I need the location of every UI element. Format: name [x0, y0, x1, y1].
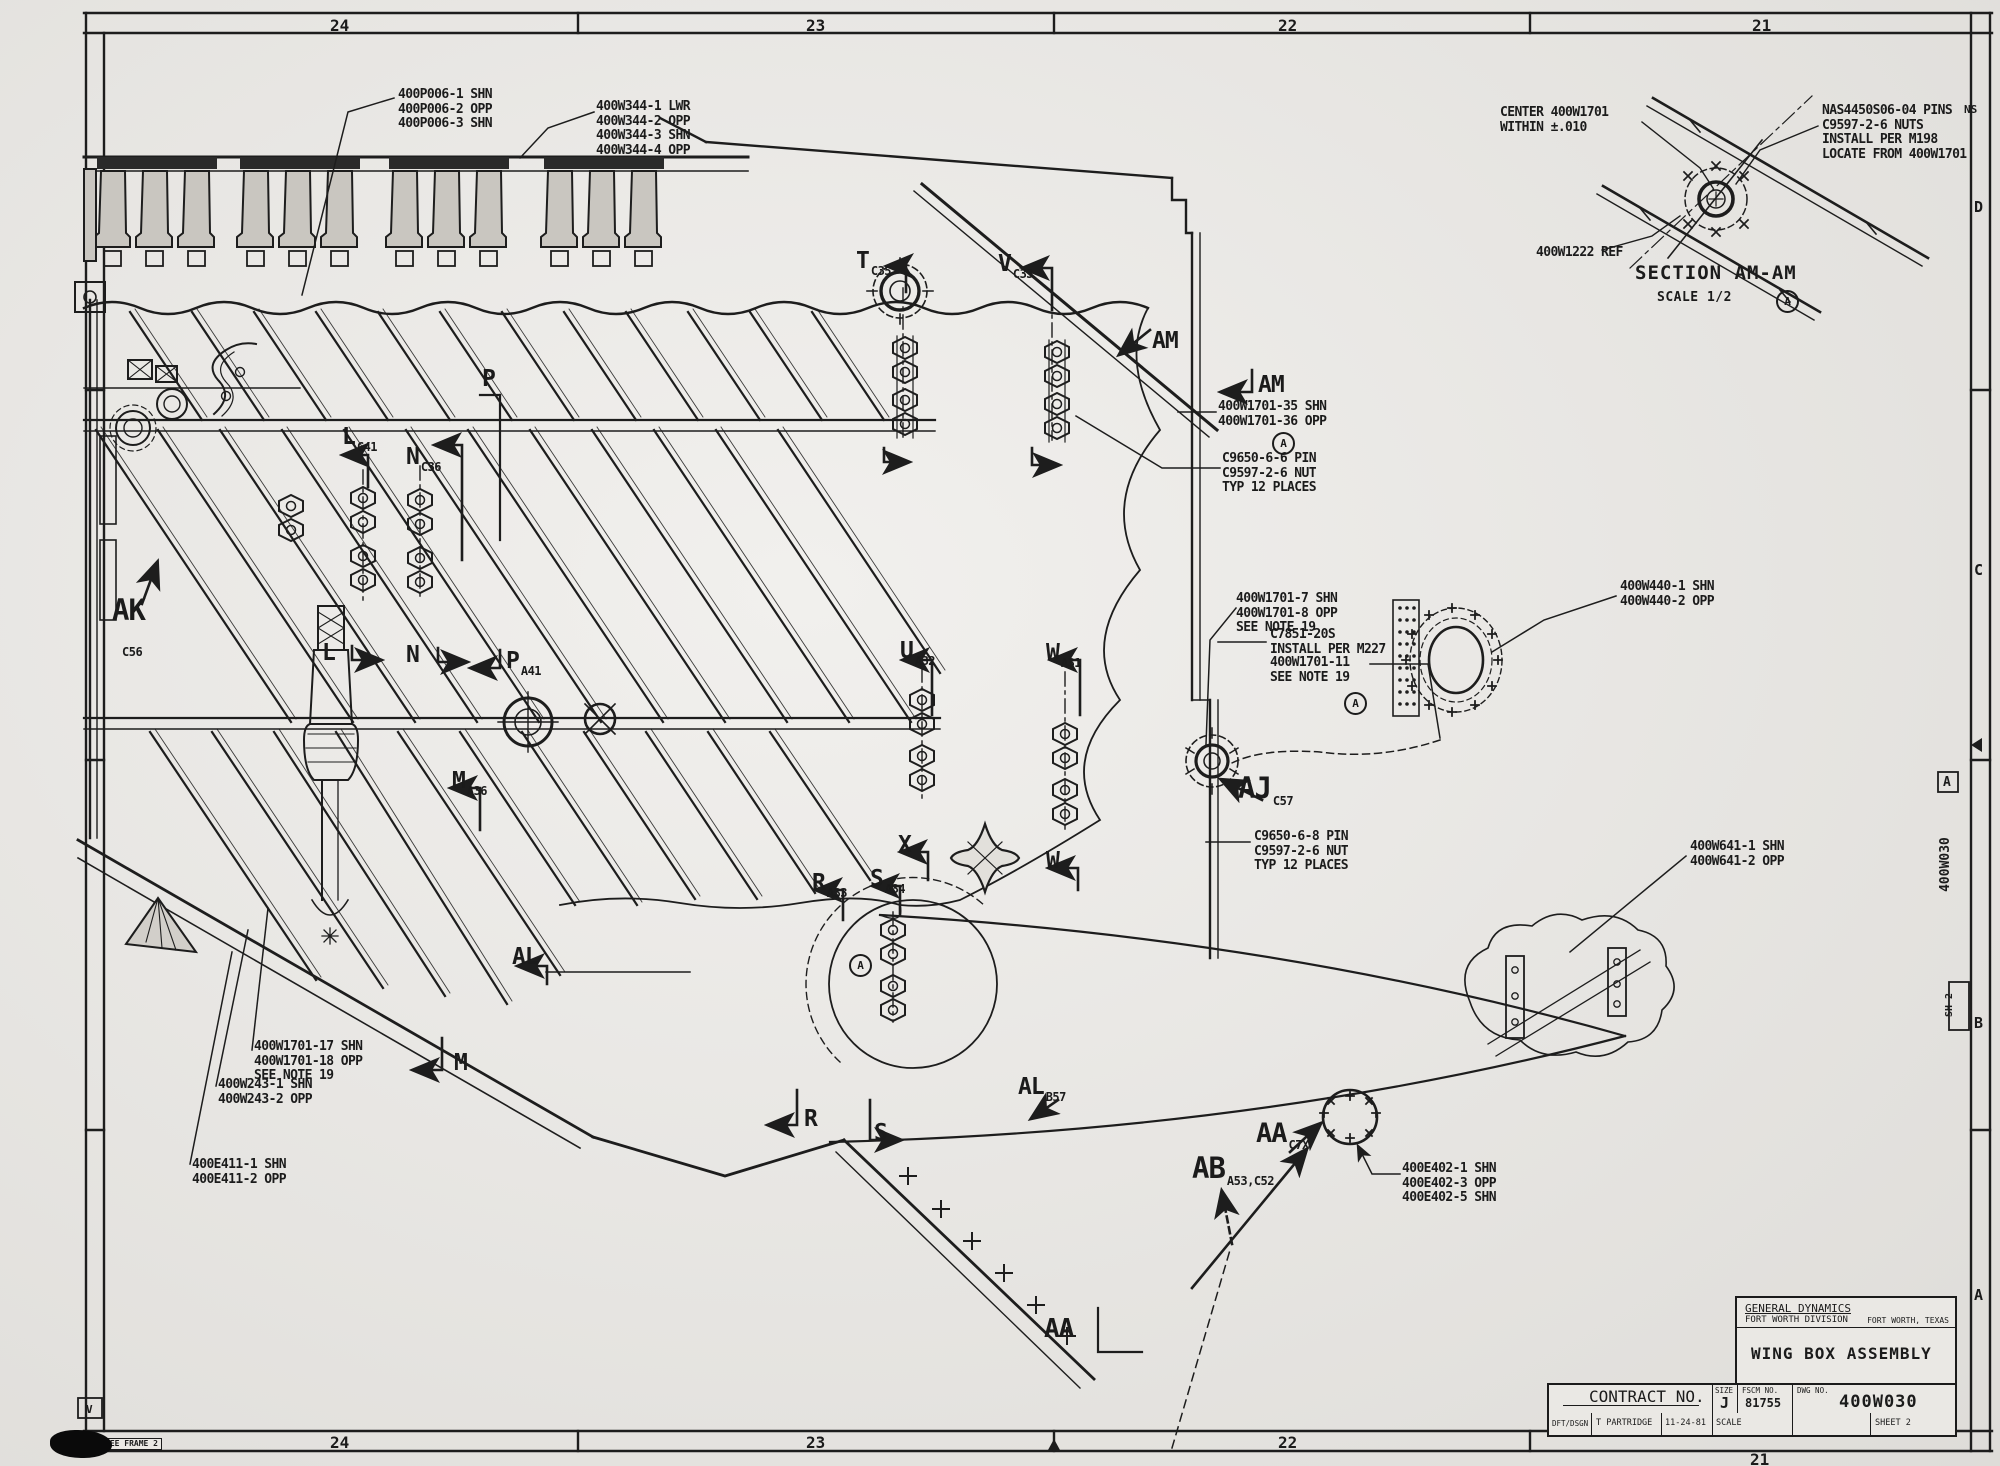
section-label-aa-c7x: AAC7X — [1256, 1120, 1309, 1151]
aa-ring-fitting — [1320, 1090, 1380, 1144]
section-label-aa-bottom: AA — [1044, 1316, 1073, 1342]
mid-spar-member — [84, 388, 940, 729]
section-label-s-bottom: S — [874, 1122, 887, 1145]
callout-400w440: 400W440-1 SHN400W440-2 OPP — [1620, 580, 1714, 609]
label-arrows — [142, 266, 1320, 1352]
leader-lines — [190, 98, 1686, 1448]
callout-nas-pins: NAS4450S06-04 PINSC9597-2-6 NUTSINSTALL … — [1822, 104, 1967, 162]
section-scale-flag: A — [1776, 290, 1799, 313]
draftsman-name: T PARTRIDGE — [1596, 1418, 1652, 1428]
dft-dsgn-label: DFT/DSGN — [1552, 1419, 1588, 1428]
callout-400p006: 400P006-1 SHN400P006-2 OPP400P006-3 SHN — [398, 88, 492, 132]
callout-400w344: 400W344-1 LWR400W344-2 OPP400W344-3 SHN4… — [596, 100, 690, 158]
dwg-no-value: 400W030 — [1839, 1392, 1918, 1412]
wing-skin-outline — [78, 118, 1218, 1388]
callout-400w1222: 400W1222 REF — [1536, 246, 1623, 261]
callout-400e402: 400E402-1 SHN400E402-3 OPP400E402-5 SHN — [1402, 1162, 1496, 1206]
section-label-al-b57: ALB57 — [1018, 1076, 1066, 1103]
division: FORT WORTH DIVISION — [1745, 1315, 1848, 1325]
zone-bottom-24: 24 — [330, 1435, 349, 1451]
zone-top-22: 22 — [1278, 18, 1297, 34]
drawing-date: 11-24-81 — [1665, 1418, 1706, 1428]
section-label-l-top: LC41 — [342, 426, 377, 453]
section-label-m-top: MA36 — [452, 770, 487, 797]
upper-rib-fittings — [75, 157, 748, 312]
engineering-drawing-sheet: 24 23 22 21 24 23 22 21 D C B A A NS 400… — [0, 0, 2000, 1466]
zone-bottom-23: 23 — [806, 1435, 825, 1451]
section-label-r-top: RA33 — [812, 872, 847, 899]
torn-patch-with-straps — [1465, 914, 1674, 1056]
lower-spar-fittings — [498, 692, 615, 752]
section-label-v-top: VC33 — [998, 253, 1033, 280]
gusset-fitting — [126, 898, 196, 952]
fscm-value: 81755 — [1745, 1396, 1781, 1410]
section-label-n-top: NC36 — [406, 446, 441, 473]
zone-letter-a: A — [1974, 1288, 1983, 1303]
racetrack-fastener-ring — [1393, 600, 1502, 716]
section-label-m-bottom: M — [454, 1052, 467, 1075]
rev-flag: V — [86, 1404, 93, 1415]
dwg-no-label: DWG NO. — [1797, 1386, 1829, 1395]
size-value: J — [1720, 1394, 1729, 1412]
section-label-al-top: AL — [512, 946, 538, 969]
drawing-linework — [0, 0, 2000, 1466]
section-label-ab: ABA53,C52 — [1192, 1154, 1274, 1187]
section-label-n-bottom: N — [406, 644, 419, 667]
scale-label: SCALE — [1716, 1418, 1742, 1428]
zone-top-23: 23 — [806, 18, 825, 34]
section-label-r-bottom: R — [804, 1108, 817, 1131]
callout-400w641: 400W641-1 SHN400W641-2 OPP — [1690, 840, 1784, 869]
drawing-title: WING BOX ASSEMBLY — [1751, 1344, 1932, 1363]
flag-note-a-3: A — [849, 954, 872, 977]
company-name: GENERAL DYNAMICS — [1745, 1302, 1851, 1315]
zone-bottom-22: 22 — [1278, 1435, 1297, 1451]
zone-top-24: 24 — [330, 18, 349, 34]
section-label-t-top: TC35 — [856, 250, 891, 277]
callout-c7851: C7851-20SINSTALL PER M227 — [1270, 628, 1386, 657]
ink-blob — [50, 1430, 112, 1458]
zone-flag-a: A — [1943, 776, 1951, 789]
contract-no-label: CONTRACT NO. — [1589, 1387, 1705, 1406]
callout-pin-c9650-6-8: C9650-6-8 PINC9597-2-6 NUTTYP 12 PLACES — [1254, 830, 1348, 874]
section-label-x: X — [898, 834, 911, 857]
callout-400w243: 400W243-1 SHN400W243-2 OPP — [218, 1078, 312, 1107]
callout-center-400w1701: CENTER 400W1701WITHIN ±.010 — [1500, 106, 1608, 135]
sheet-number: SHEET 2 — [1875, 1418, 1911, 1428]
zone-letter-d: D — [1974, 200, 1983, 215]
title-block: GENERAL DYNAMICS FORT WORTH DIVISION FOR… — [1547, 1296, 1953, 1435]
zone-bottom-21: 21 — [1750, 1452, 1769, 1466]
edge-sheet-vertical: SH 2 — [1945, 993, 1955, 1017]
callout-pin-c9650-6-6: C9650-6-6 PINC9597-2-6 NUTTYP 12 PLACES — [1222, 452, 1316, 496]
fscm-label: FSCM NO. — [1742, 1386, 1778, 1395]
zone-letter-b: B — [1974, 1016, 1983, 1031]
star-fitting — [951, 824, 1019, 892]
flag-note-a-1: A — [1272, 432, 1295, 455]
edge-dwg-number-vertical: 400W030 — [1939, 837, 1952, 892]
aa-detail-circle — [806, 878, 1075, 1344]
section-label-w-bottom: W — [1046, 850, 1059, 873]
section-label-p-bottom: PA41 — [506, 650, 541, 677]
section-label-am-1: AM — [1152, 330, 1178, 353]
section-cut-lines — [363, 288, 1065, 1022]
fastener-hex-chains — [279, 336, 1077, 1021]
flag-note-a-2: A — [1344, 692, 1367, 715]
section-label-am-2: AM — [1258, 374, 1284, 397]
section-label-l-bottom: L — [322, 642, 335, 665]
section-label-w-top: WA31 — [1046, 642, 1081, 669]
callout-400w1701-11: 400W1701-11SEE NOTE 19 — [1270, 656, 1350, 685]
section-label-u: UA32 — [900, 640, 935, 667]
callout-400w1701-35: 400W1701-35 SHN400W1701-36 OPP — [1218, 400, 1326, 429]
callout-400e411: 400E411-1 SHN400E411-2 OPP — [192, 1158, 286, 1187]
section-title: SECTION AM-AM SCALE 1/2 — [1635, 264, 1797, 304]
zone-letter-c: C — [1974, 563, 1983, 578]
section-label-s-top: SA34 — [870, 868, 905, 895]
zone-top-21: 21 — [1752, 18, 1771, 34]
section-label-ak: AKC56 — [112, 596, 145, 658]
location: FORT WORTH, TEXAS — [1867, 1316, 1949, 1325]
section-label-aj: AJC57 — [1238, 774, 1293, 807]
section-label-p-top: P — [482, 368, 495, 391]
